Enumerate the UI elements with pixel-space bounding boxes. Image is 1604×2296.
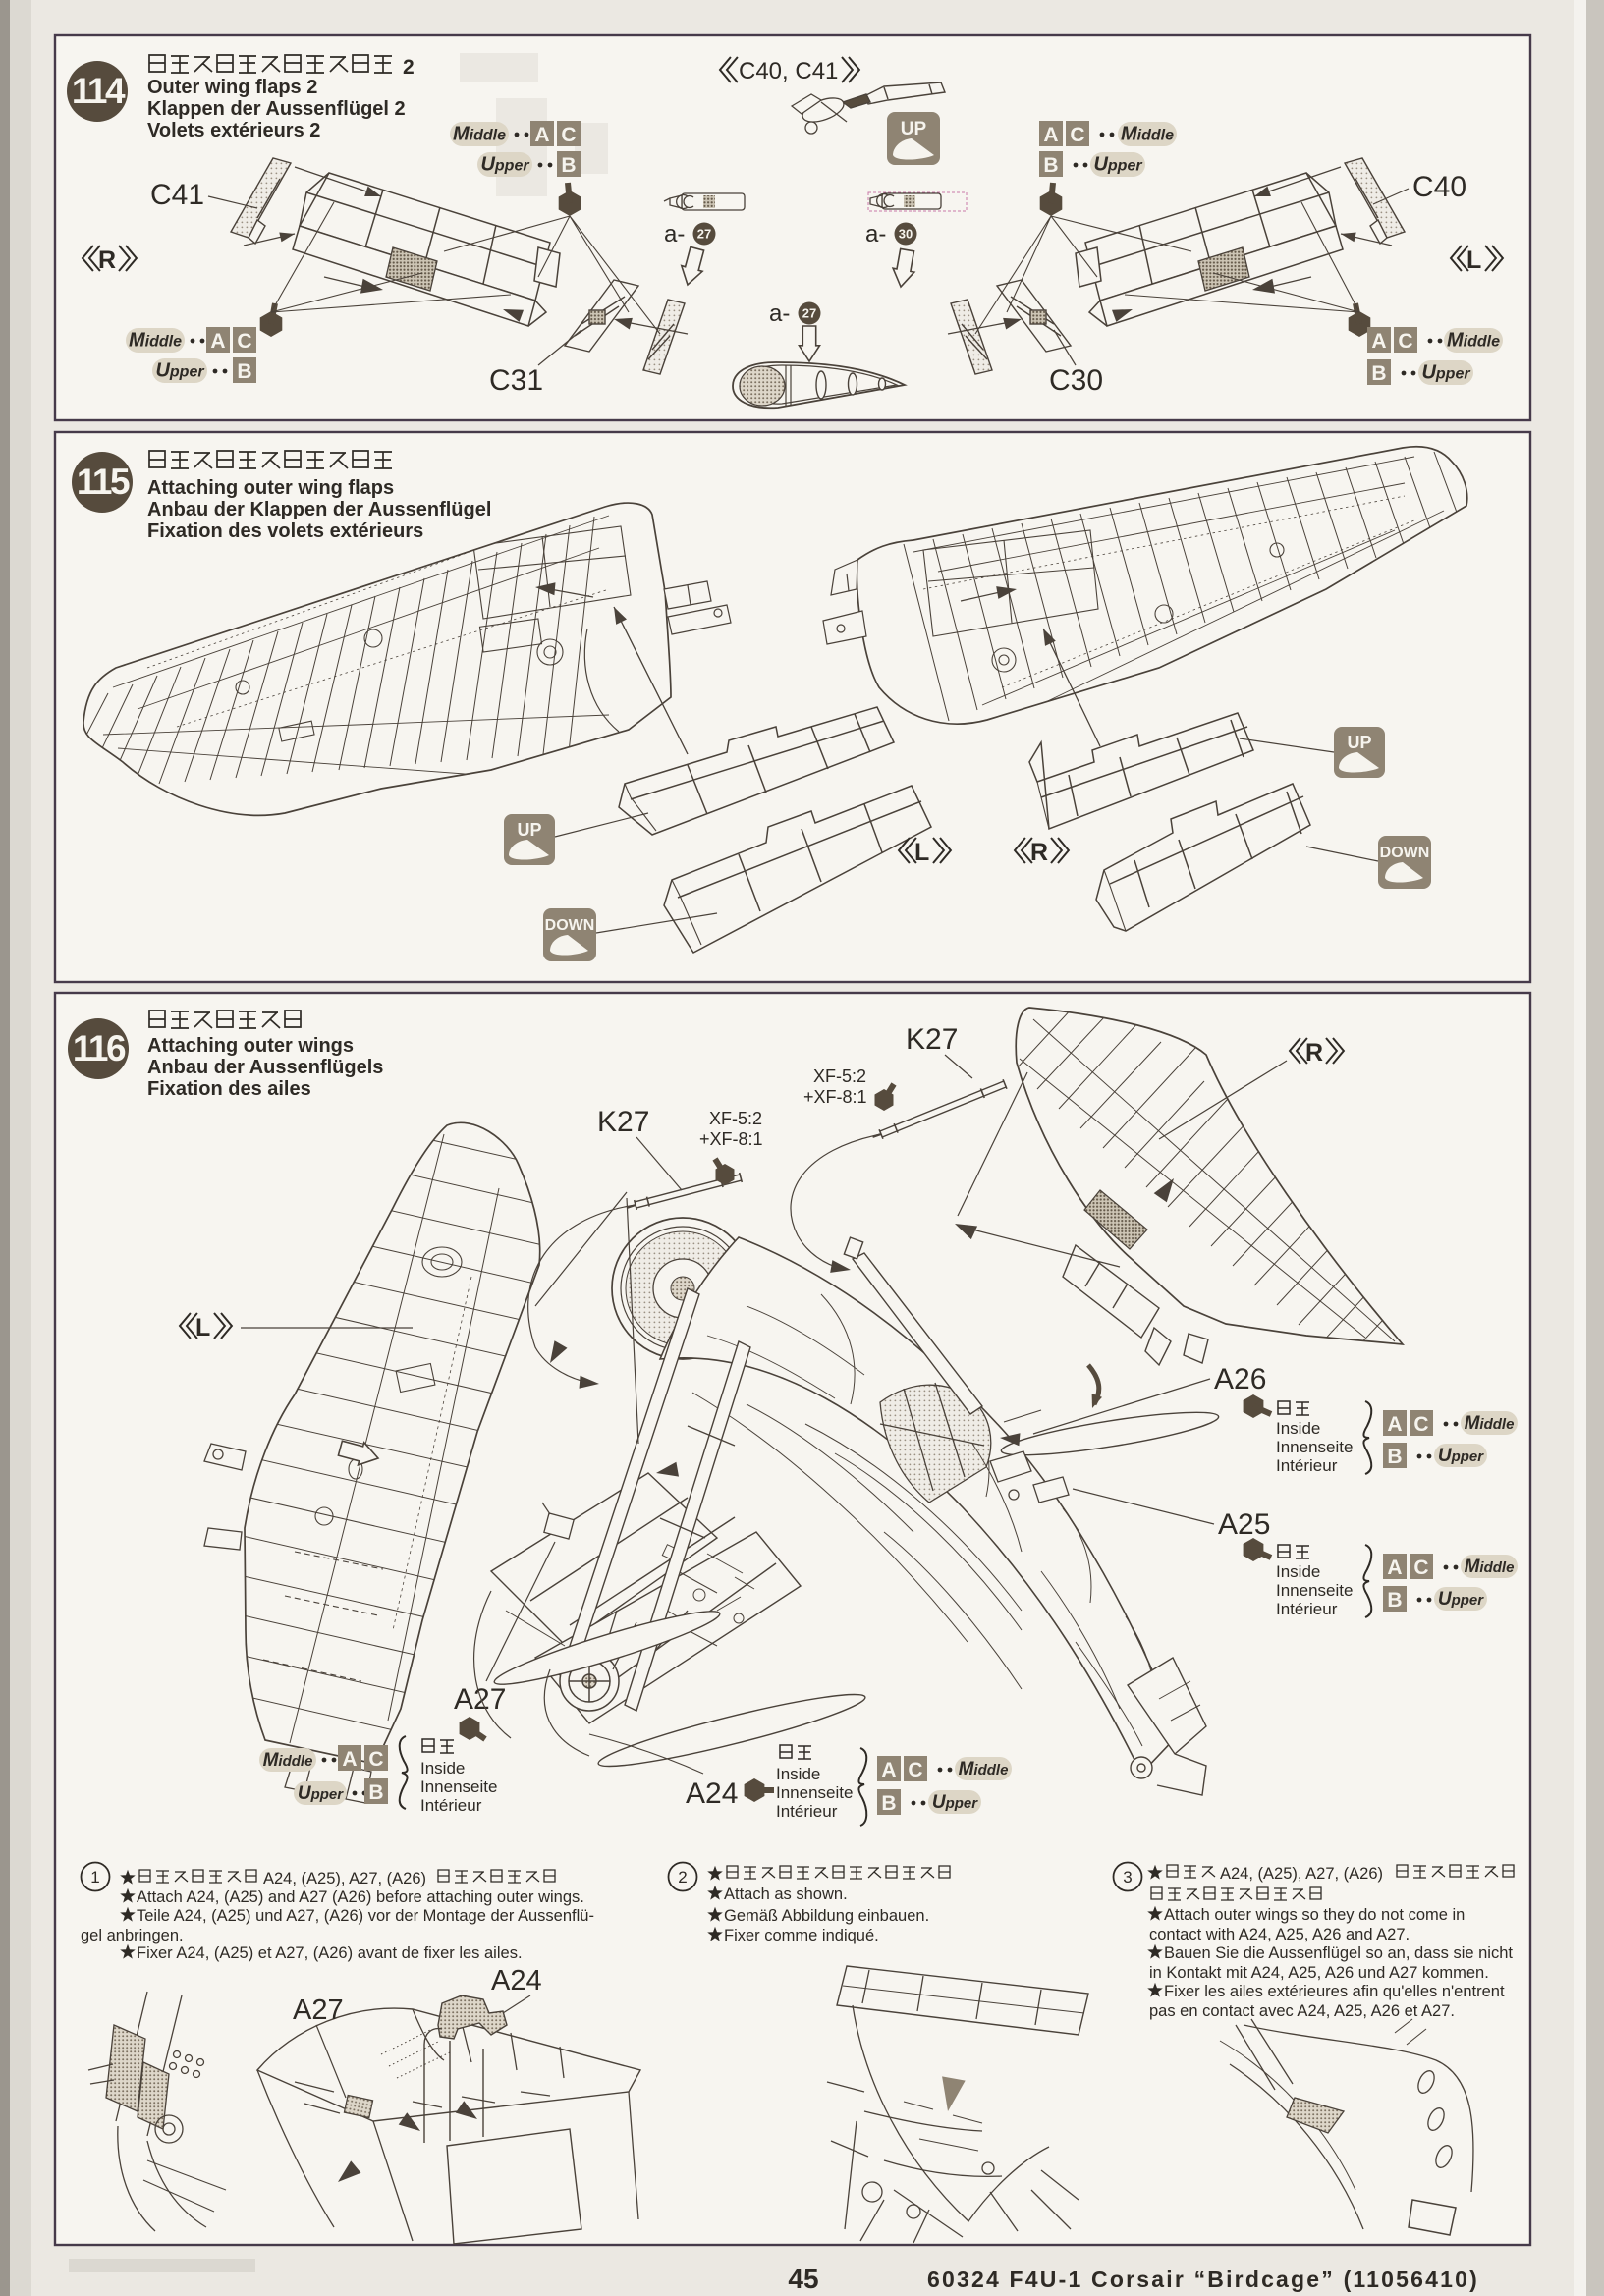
svg-text:Anbau der Aussenflügels: Anbau der Aussenflügels — [147, 1057, 383, 1078]
svg-text:B: B — [1387, 1589, 1402, 1612]
svg-text:Intérieur: Intérieur — [420, 1796, 482, 1815]
svg-text:C41: C41 — [150, 179, 204, 211]
svg-text:Upper: Upper — [155, 360, 204, 382]
svg-text:A24: A24 — [686, 1777, 738, 1810]
svg-text:A: A — [1387, 1557, 1402, 1579]
svg-text:DOWN: DOWN — [1380, 845, 1430, 861]
svg-text:L: L — [914, 839, 929, 866]
svg-text:L: L — [1466, 246, 1481, 274]
svg-text:2: 2 — [403, 56, 415, 79]
svg-text:A26: A26 — [1214, 1363, 1266, 1395]
svg-text:Fixation des ailes: Fixation des ailes — [147, 1078, 311, 1100]
svg-text:27: 27 — [802, 306, 816, 321]
svg-text:XF-5:2: XF-5:2 — [813, 1066, 866, 1086]
svg-text:Innenseite: Innenseite — [420, 1777, 497, 1796]
svg-text:K27: K27 — [906, 1023, 958, 1056]
svg-text:30: 30 — [899, 227, 913, 242]
svg-text:A25: A25 — [1218, 1508, 1270, 1541]
svg-text:a-: a- — [865, 221, 886, 247]
svg-text:R: R — [1305, 1039, 1323, 1066]
svg-text:116: 116 — [73, 1028, 126, 1068]
svg-text:Innenseite: Innenseite — [1276, 1438, 1353, 1456]
svg-text:Fixation des volets extérieurs: Fixation des volets extérieurs — [147, 520, 423, 542]
svg-text:C: C — [1070, 124, 1084, 146]
svg-text:A: A — [881, 1759, 896, 1781]
svg-text:C: C — [237, 330, 251, 353]
svg-text:Middle: Middle — [1465, 1557, 1515, 1577]
svg-text:Volets extérieurs 2: Volets extérieurs 2 — [147, 120, 320, 141]
svg-text:2: 2 — [678, 1868, 687, 1886]
svg-text:Inside: Inside — [1276, 1562, 1320, 1581]
svg-text:B: B — [561, 154, 576, 177]
svg-text:Attaching outer wing flaps: Attaching outer wing flaps — [147, 477, 394, 499]
svg-text:Bauen Sie die Aussenflügel so: Bauen Sie die Aussenflügel so an, dass s… — [1164, 1944, 1513, 1962]
svg-text:Innenseite: Innenseite — [1276, 1581, 1353, 1600]
svg-text:UP: UP — [1347, 733, 1371, 752]
svg-text:Gemäß Abbildung einbauen.: Gemäß Abbildung einbauen. — [724, 1907, 929, 1925]
svg-text:C: C — [368, 1748, 383, 1771]
svg-text:B: B — [368, 1781, 383, 1804]
svg-text:A24, (A25), A27, (A26): A24, (A25), A27, (A26) — [263, 1870, 426, 1887]
svg-text:Intérieur: Intérieur — [1276, 1600, 1338, 1618]
svg-text:Upper: Upper — [1438, 1446, 1484, 1466]
svg-text:Klappen der Aussenflügel 2: Klappen der Aussenflügel 2 — [147, 98, 406, 120]
svg-text:45: 45 — [788, 2264, 818, 2294]
svg-text:A: A — [1043, 124, 1058, 146]
svg-text:C: C — [1413, 1557, 1428, 1579]
svg-text:A: A — [1371, 330, 1386, 353]
svg-text:Fixer les ailes extérieures af: Fixer les ailes extérieures afin qu'elle… — [1164, 1983, 1505, 2000]
svg-text:B: B — [1043, 154, 1058, 177]
svg-text:gel anbringen.: gel anbringen. — [81, 1927, 184, 1944]
svg-text:A: A — [210, 330, 225, 353]
svg-text:C40: C40 — [1412, 171, 1466, 203]
svg-text:C: C — [908, 1759, 922, 1781]
svg-text:+XF-8:1: +XF-8:1 — [699, 1129, 763, 1149]
svg-text:A27: A27 — [293, 1995, 344, 2026]
svg-text:Upper: Upper — [1438, 1589, 1484, 1610]
svg-text:C30: C30 — [1049, 364, 1103, 397]
svg-text:Upper: Upper — [1421, 362, 1470, 384]
svg-text:A: A — [342, 1748, 357, 1771]
svg-text:Intérieur: Intérieur — [776, 1802, 838, 1821]
svg-text:60324 F4U-1 Corsair “Birdcage: 60324 F4U-1 Corsair “Birdcage” (11056410… — [927, 2267, 1479, 2292]
svg-text:+XF-8:1: +XF-8:1 — [803, 1087, 867, 1107]
svg-text:Intérieur: Intérieur — [1276, 1456, 1338, 1475]
svg-text:114: 114 — [72, 71, 126, 111]
svg-text:Attach A24, (A25) and A27 (A26: Attach A24, (A25) and A27 (A26) before a… — [137, 1888, 584, 1906]
svg-text:Fixer comme indiqué.: Fixer comme indiqué. — [724, 1927, 879, 1944]
svg-text:contact with A24, A25, A26 and: contact with A24, A25, A26 and A27. — [1149, 1926, 1410, 1943]
svg-text:Middle: Middle — [129, 330, 182, 352]
svg-text:UP: UP — [517, 820, 541, 840]
svg-text:in Kontakt mit A24, A25, A26 u: in Kontakt mit A24, A25, A26 und A27 kom… — [1149, 1964, 1489, 1982]
svg-text:Middle: Middle — [959, 1759, 1009, 1779]
svg-text:C31: C31 — [489, 364, 543, 397]
svg-text:Middle: Middle — [1121, 124, 1174, 145]
svg-text:C40, C41: C40, C41 — [739, 58, 838, 84]
svg-text:R: R — [1030, 839, 1048, 866]
svg-text:C: C — [1398, 330, 1412, 353]
svg-text:Teile A24, (A25) und A27, (A26: Teile A24, (A25) und A27, (A26) vor der … — [137, 1907, 594, 1925]
svg-text:Middle: Middle — [263, 1750, 313, 1771]
svg-text:Inside: Inside — [1276, 1419, 1320, 1438]
svg-text:A: A — [534, 124, 549, 146]
svg-text:B: B — [237, 360, 251, 383]
svg-text:Upper: Upper — [298, 1783, 344, 1804]
svg-text:Upper: Upper — [1093, 154, 1142, 176]
svg-text:A24, (A25), A27, (A26): A24, (A25), A27, (A26) — [1220, 1865, 1383, 1883]
svg-text:Attach outer wings so they do: Attach outer wings so they do not come i… — [1164, 1906, 1465, 1924]
svg-text:Attach as shown.: Attach as shown. — [724, 1886, 848, 1903]
svg-text:XF-5:2: XF-5:2 — [709, 1109, 762, 1128]
svg-text:Fixer A24, (A25) et A27, (A26): Fixer A24, (A25) et A27, (A26) avant de … — [137, 1944, 523, 1962]
svg-text:Upper: Upper — [480, 154, 529, 176]
svg-text:C: C — [561, 124, 576, 146]
svg-text:Upper: Upper — [932, 1792, 978, 1813]
svg-text:115: 115 — [77, 462, 130, 502]
svg-text:a-: a- — [769, 301, 790, 327]
svg-text:A: A — [1387, 1413, 1402, 1436]
svg-text:1: 1 — [90, 1868, 99, 1886]
svg-text:C: C — [1413, 1413, 1428, 1436]
svg-text:Innenseite: Innenseite — [776, 1783, 853, 1802]
svg-text:3: 3 — [1123, 1868, 1132, 1886]
svg-text:L: L — [195, 1314, 210, 1341]
svg-text:Attaching outer wings: Attaching outer wings — [147, 1035, 354, 1057]
svg-text:Middle: Middle — [453, 124, 506, 145]
svg-text:B: B — [1371, 362, 1386, 385]
svg-text:B: B — [881, 1792, 896, 1815]
svg-text:A24: A24 — [491, 1965, 542, 1996]
svg-text:Anbau der Klappen der Aussenfl: Anbau der Klappen der Aussenflügel — [147, 499, 491, 520]
svg-text:Outer wing flaps 2: Outer wing flaps 2 — [147, 77, 317, 98]
svg-text:27: 27 — [697, 227, 711, 242]
svg-text:pas en contact avec A24, A25,: pas en contact avec A24, A25, A26 et A27… — [1149, 2002, 1455, 2020]
svg-text:a-: a- — [664, 221, 685, 247]
svg-text:Middle: Middle — [1465, 1413, 1515, 1434]
svg-text:UP: UP — [901, 119, 927, 139]
svg-text:Middle: Middle — [1447, 330, 1500, 352]
svg-text:K27: K27 — [597, 1106, 649, 1138]
svg-text:B: B — [1387, 1446, 1402, 1468]
svg-text:R: R — [98, 246, 116, 274]
svg-text:Inside: Inside — [776, 1765, 820, 1783]
svg-text:A27: A27 — [454, 1683, 506, 1716]
svg-text:DOWN: DOWN — [545, 917, 595, 934]
svg-text:Inside: Inside — [420, 1759, 465, 1777]
